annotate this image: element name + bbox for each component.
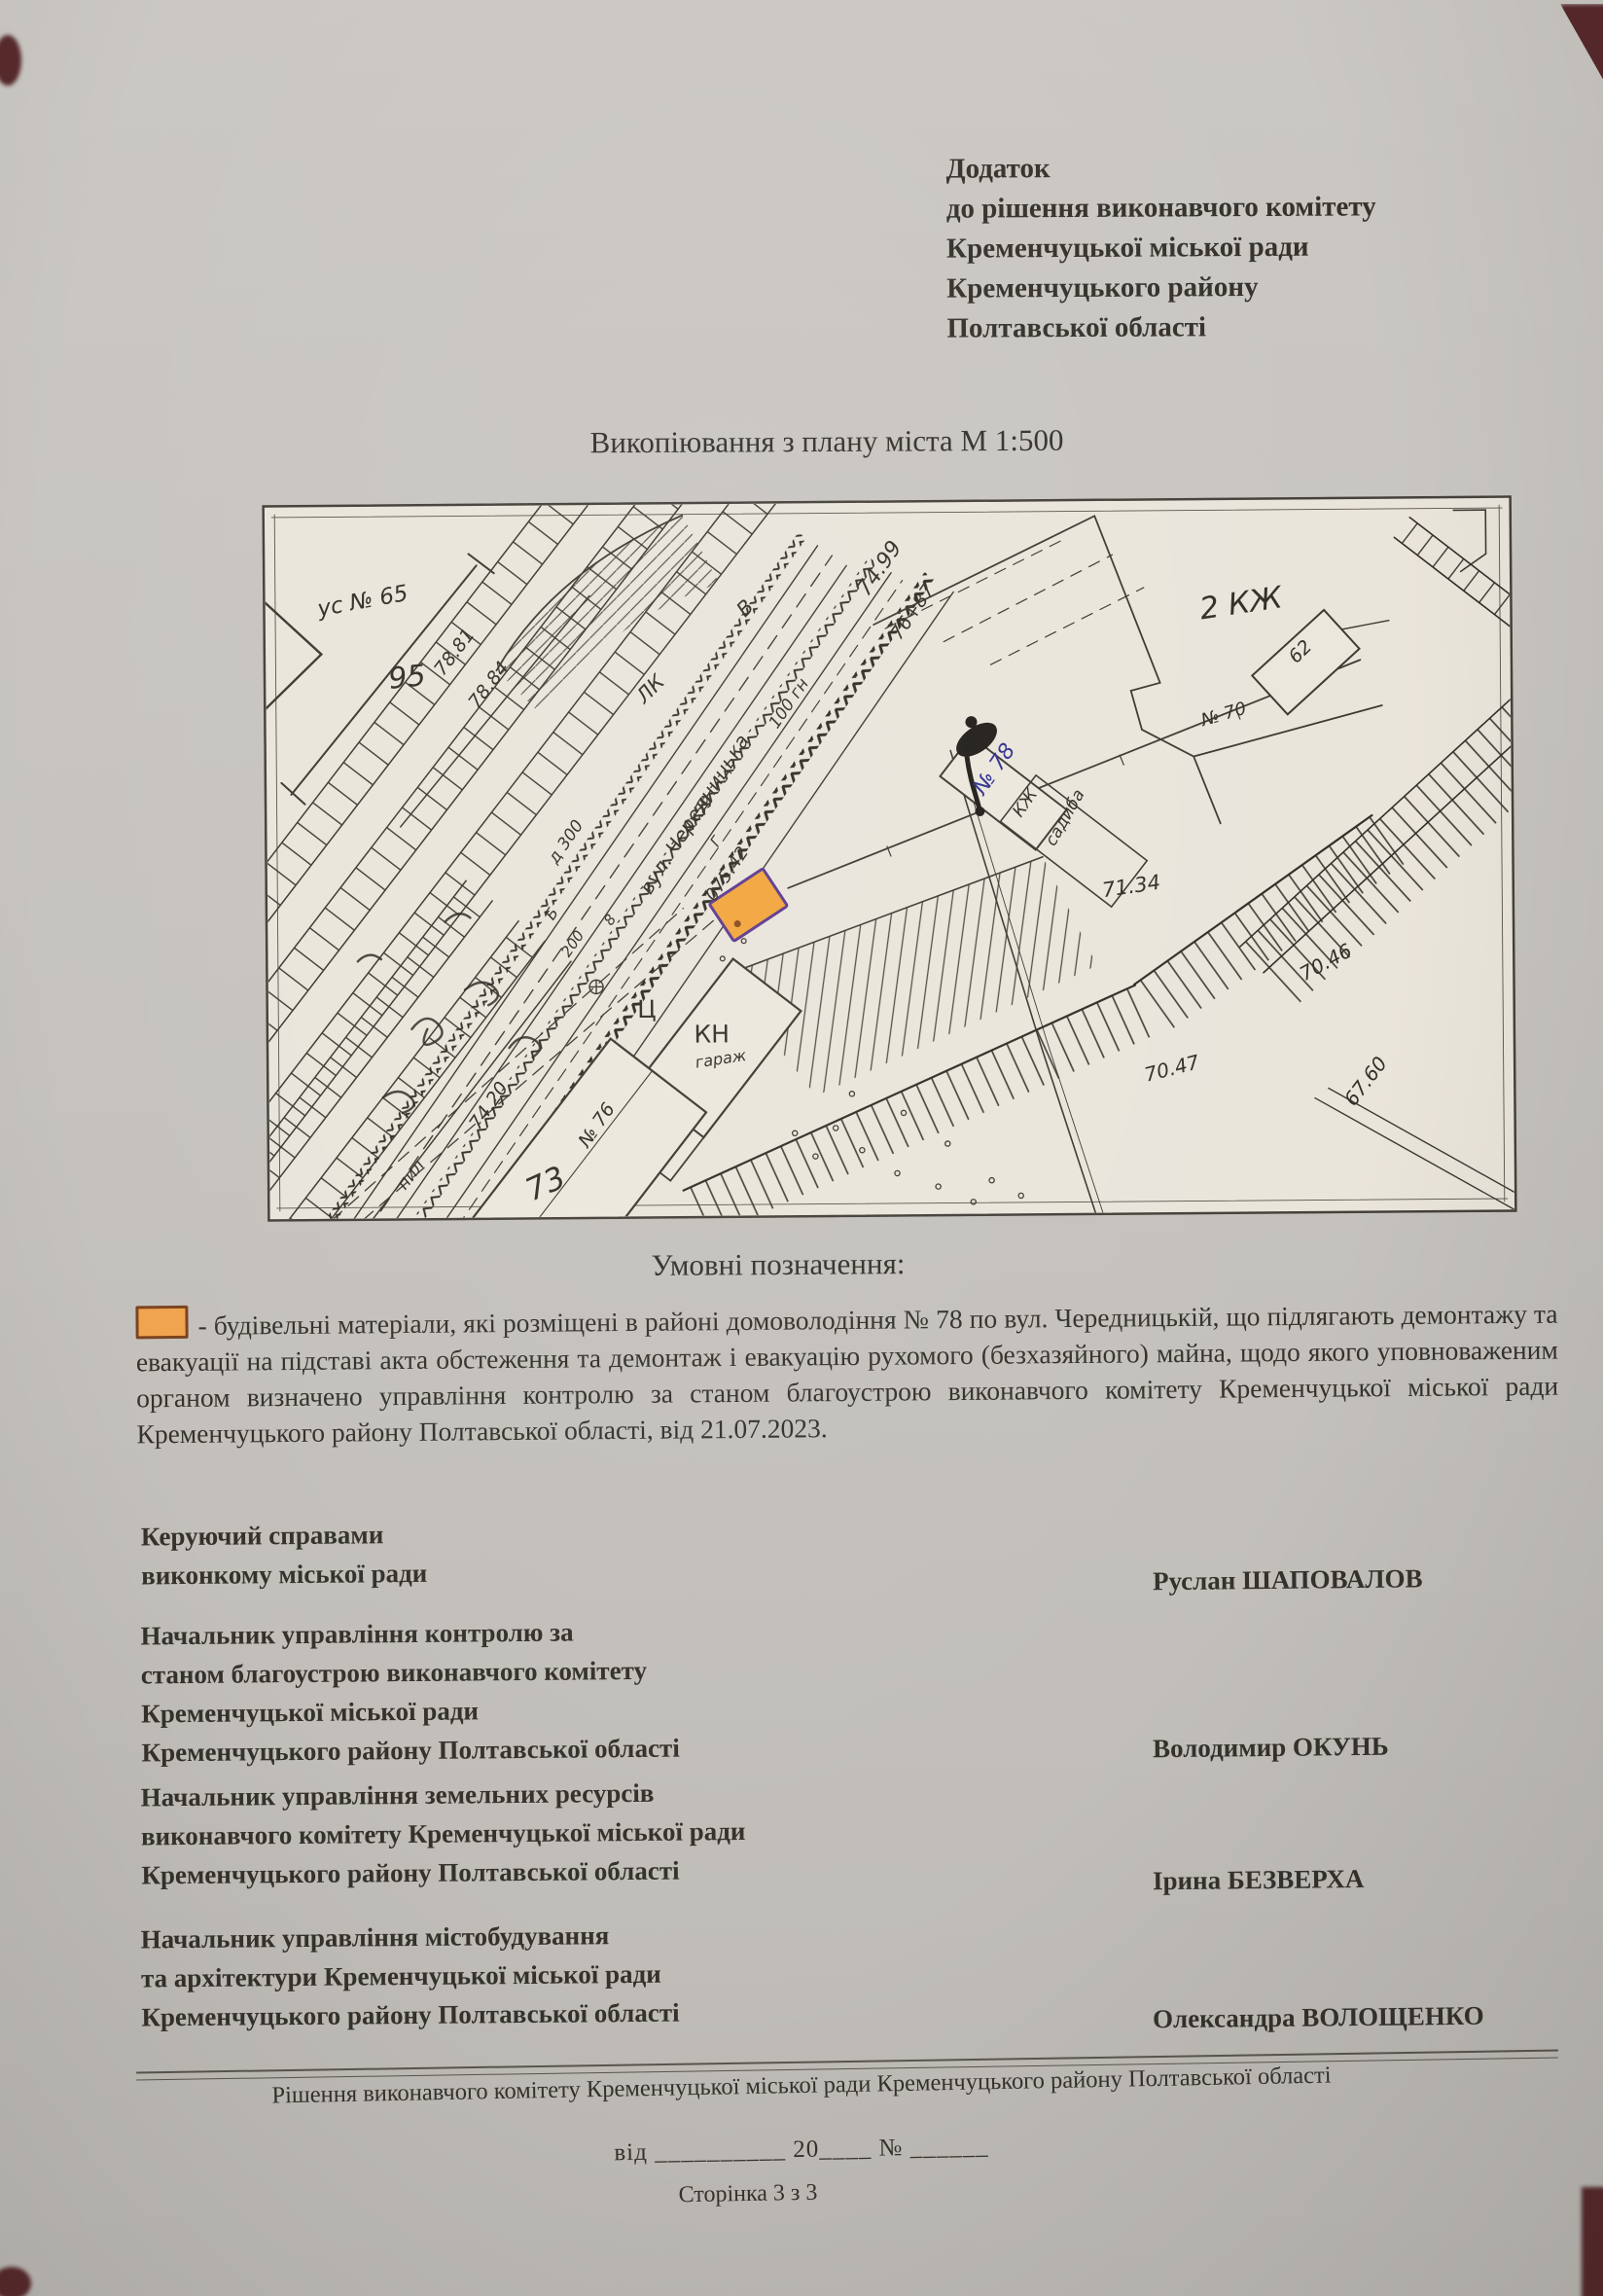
document-header: Додаток до рішення виконавчого комітету …	[945, 146, 1569, 348]
sig-title-line: Начальник управління земельних ресурсів	[140, 1772, 908, 1817]
city-plan-map: ус № 65 95 78.81 78.84 ЛК В 74.99 76+87 …	[262, 495, 1517, 1222]
sig-title-line: виконкому міської ради	[141, 1550, 909, 1596]
map-label: 95	[387, 659, 428, 697]
photo-corner	[0, 2267, 31, 2296]
legend-text: - будівельні матеріали, які розміщені в …	[136, 1299, 1559, 1450]
header-line: до рішення виконавчого комітету	[946, 186, 1569, 229]
legend-title: Умовні позначення:	[292, 1244, 1265, 1286]
footer-date-line: від __________ 20____ № ______	[91, 2124, 1512, 2175]
sig-title-line: Кременчуцької міської ради	[141, 1688, 909, 1734]
footer-decision-line: Рішення виконавчого комітету Кременчуцьк…	[91, 2059, 1512, 2113]
sig-title-line: Кременчуцького району Полтавської област…	[141, 1991, 909, 2037]
sig-title-line: Начальник управління контролю за	[140, 1610, 908, 1656]
sig-title-line: Кременчуцького району Полтавської област…	[141, 1849, 909, 1895]
signature-title-3: Начальник управління земельних ресурсів …	[140, 1772, 909, 1895]
photo-corner	[1560, 4, 1603, 90]
sig-title-line: Керуючий справами	[141, 1511, 909, 1557]
photo-corner	[1582, 2187, 1603, 2296]
footer-page-number: Сторінка 3 з 3	[91, 2170, 1405, 2219]
sig-title-line: Начальник управління містобудування	[140, 1914, 908, 1959]
header-line: Полтавської області	[946, 305, 1569, 348]
header-line: Кременчуцької міської ради	[946, 226, 1569, 269]
legend-swatch	[135, 1306, 188, 1339]
sig-title-line: виконавчого комітету Кременчуцької міськ…	[141, 1811, 909, 1856]
map-label: КН	[694, 1020, 730, 1048]
signature-name-1: Руслан ШАПОВАЛОВ	[1153, 1562, 1571, 1597]
sig-title-line: станом благоустрою виконавчого комітету	[141, 1649, 909, 1695]
signature-name-3: Ірина БЕЗВЕРХА	[1153, 1862, 1571, 1897]
sig-title-line: Кременчуцького району Полтавської област…	[141, 1727, 909, 1773]
header-line: Додаток	[945, 146, 1568, 189]
scanned-document-page: Додаток до рішення виконавчого комітету …	[0, 0, 1603, 2296]
map-label: Ц	[637, 995, 657, 1023]
signature-name-2: Володимир ОКУНЬ	[1153, 1730, 1571, 1765]
header-line: Кременчуцького району	[946, 266, 1569, 308]
signature-title-4: Начальник управління містобудування та а…	[140, 1914, 909, 2037]
photo-corner	[0, 35, 21, 86]
signature-name-4: Олександра ВОЛОЩЕНКО	[1153, 2000, 1571, 2035]
signature-title-2: Начальник управління контролю за станом …	[140, 1610, 909, 1773]
legend-paragraph: - будівельні матеріали, які розміщені в …	[135, 1294, 1558, 1453]
map-title: Викопіювання з плану міста М 1:500	[340, 421, 1313, 461]
signature-title-1: Керуючий справами виконкому міської ради	[141, 1511, 910, 1596]
sig-title-line: та архітектури Кременчуцької міської рад…	[141, 1953, 909, 1998]
